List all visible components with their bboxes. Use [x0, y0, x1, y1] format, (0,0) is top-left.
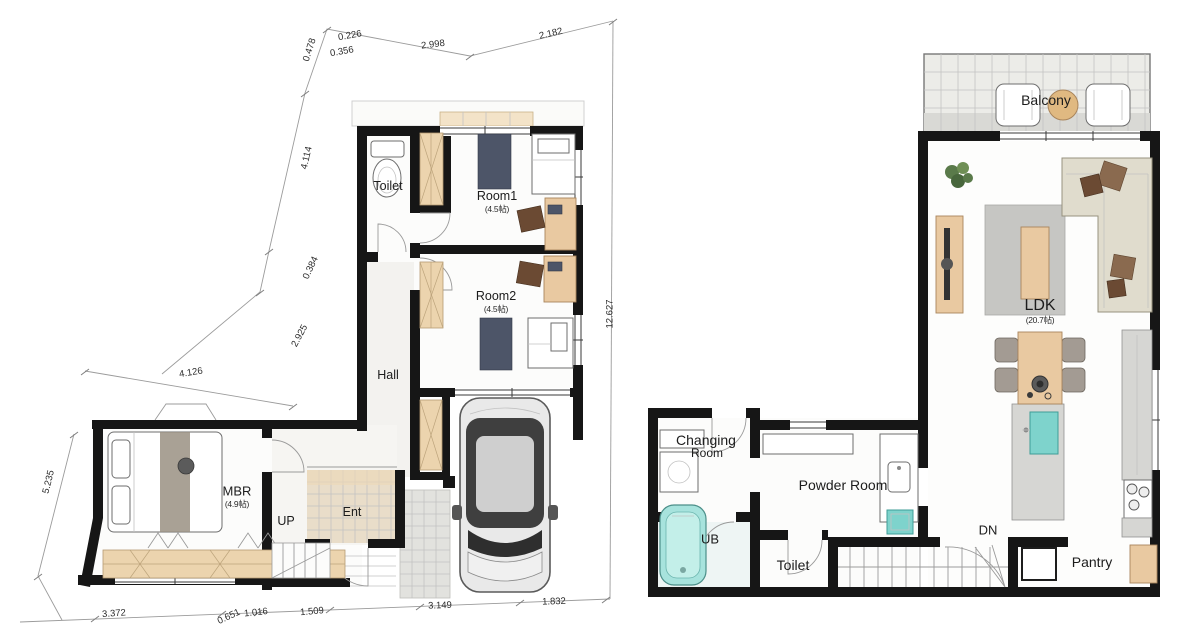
dim-bottom-2: 1.016	[244, 607, 269, 619]
floor1-plan	[20, 19, 617, 622]
kitchen-counter	[1122, 330, 1152, 537]
dim-bottom-0: 3.372	[102, 608, 126, 619]
mbr-label: MBR	[223, 485, 252, 498]
dn-label: DN	[979, 524, 998, 537]
up-label: UP	[277, 515, 294, 528]
toilet2-label: Toilet	[777, 558, 810, 572]
room1-size: (4.5帖)	[485, 205, 509, 214]
room2-size: (4.5帖)	[484, 305, 508, 314]
floor1-stairs	[272, 543, 330, 578]
changing-label-2: Room	[691, 447, 723, 459]
pantry-label: Pantry	[1072, 555, 1112, 569]
ldk-label: LDK	[1024, 298, 1055, 314]
powder-label: Powder Room	[799, 478, 888, 492]
ub-label: UB	[701, 533, 719, 546]
floor2-plan	[648, 54, 1160, 597]
floor-plan-sheet: Toilet Room1 (4.5帖) Room2 (4.5帖) Hall MB…	[0, 0, 1200, 631]
changing-label-1: Changing	[676, 433, 736, 447]
ent-label: Ent	[343, 506, 362, 519]
dim-bottom-4: 3.149	[428, 601, 452, 611]
mbr-size: (4.9帖)	[225, 500, 249, 509]
dim-bottom-5: 1.832	[542, 597, 566, 607]
car	[452, 398, 558, 592]
dim-bottom-3: 1.509	[300, 606, 325, 618]
ldk-size: (20.7帖)	[1026, 316, 1055, 325]
room2-label: Room2	[476, 290, 516, 303]
hall-label: Hall	[377, 369, 399, 382]
kitchen-island	[1012, 404, 1064, 520]
dim-right-0: 12.627	[605, 299, 615, 328]
room1-label: Room1	[477, 190, 517, 203]
plan-drawing	[0, 0, 1200, 631]
balcony-label: Balcony	[1021, 93, 1071, 107]
floor1-eaves	[352, 101, 584, 126]
mbr-furniture	[108, 432, 222, 532]
toilet1-label: Toilet	[373, 180, 402, 193]
bathtub	[660, 505, 706, 585]
